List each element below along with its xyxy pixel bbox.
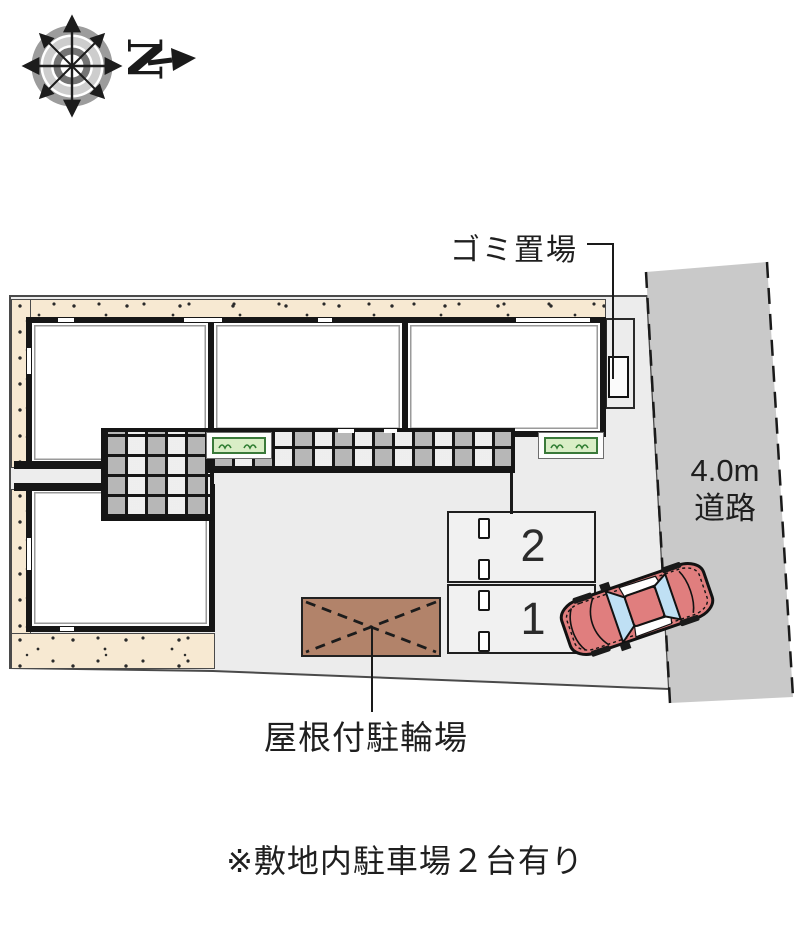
window	[184, 318, 222, 322]
parking-divider-dash	[478, 559, 490, 580]
garbage-label: ゴミ置場	[450, 225, 578, 269]
planter-leaves-icon	[546, 439, 596, 452]
garbage-leader-line-v	[612, 243, 614, 379]
balcony-block	[101, 428, 214, 521]
road-label-line1: 4.0m	[691, 453, 760, 488]
room-top-middle	[208, 317, 408, 437]
room-top-right	[402, 317, 606, 437]
parking-divider-dash	[478, 518, 490, 539]
road-label: 4.0m 道路	[666, 452, 784, 528]
planter-box	[206, 432, 272, 459]
window	[27, 348, 31, 374]
compass-rose	[25, 18, 119, 114]
parking-number-1: 1	[510, 593, 556, 645]
window	[27, 538, 31, 570]
parking-note-label: ※敷地内駐車場２台有り	[5, 836, 800, 882]
window	[516, 318, 590, 322]
door-gap	[384, 429, 397, 433]
garbage-leader-line-h	[587, 243, 614, 245]
window	[60, 627, 74, 631]
road-label-line2: 道路	[694, 491, 756, 526]
bicycle-leader-line	[371, 626, 373, 712]
planter-leaves-icon	[214, 439, 264, 452]
bicycle-shed-label: 屋根付駐輪場	[264, 711, 468, 759]
corridor-wall-upper	[14, 461, 107, 469]
building-band-bottom	[11, 633, 215, 669]
parking-divider-dash	[478, 590, 490, 611]
north-letter: N	[117, 34, 169, 84]
parking-divider-dash	[478, 631, 490, 652]
window	[58, 318, 74, 322]
corridor-wall-lower	[14, 483, 107, 491]
site-plan-page: 2 1 N ゴミ置場	[0, 0, 800, 938]
corridor-path	[14, 469, 107, 483]
window	[318, 318, 332, 322]
planter-green	[544, 437, 598, 454]
planter-green	[212, 437, 266, 454]
planter-box	[538, 432, 604, 459]
parking-number-2: 2	[510, 520, 556, 572]
door-gap	[338, 429, 354, 433]
